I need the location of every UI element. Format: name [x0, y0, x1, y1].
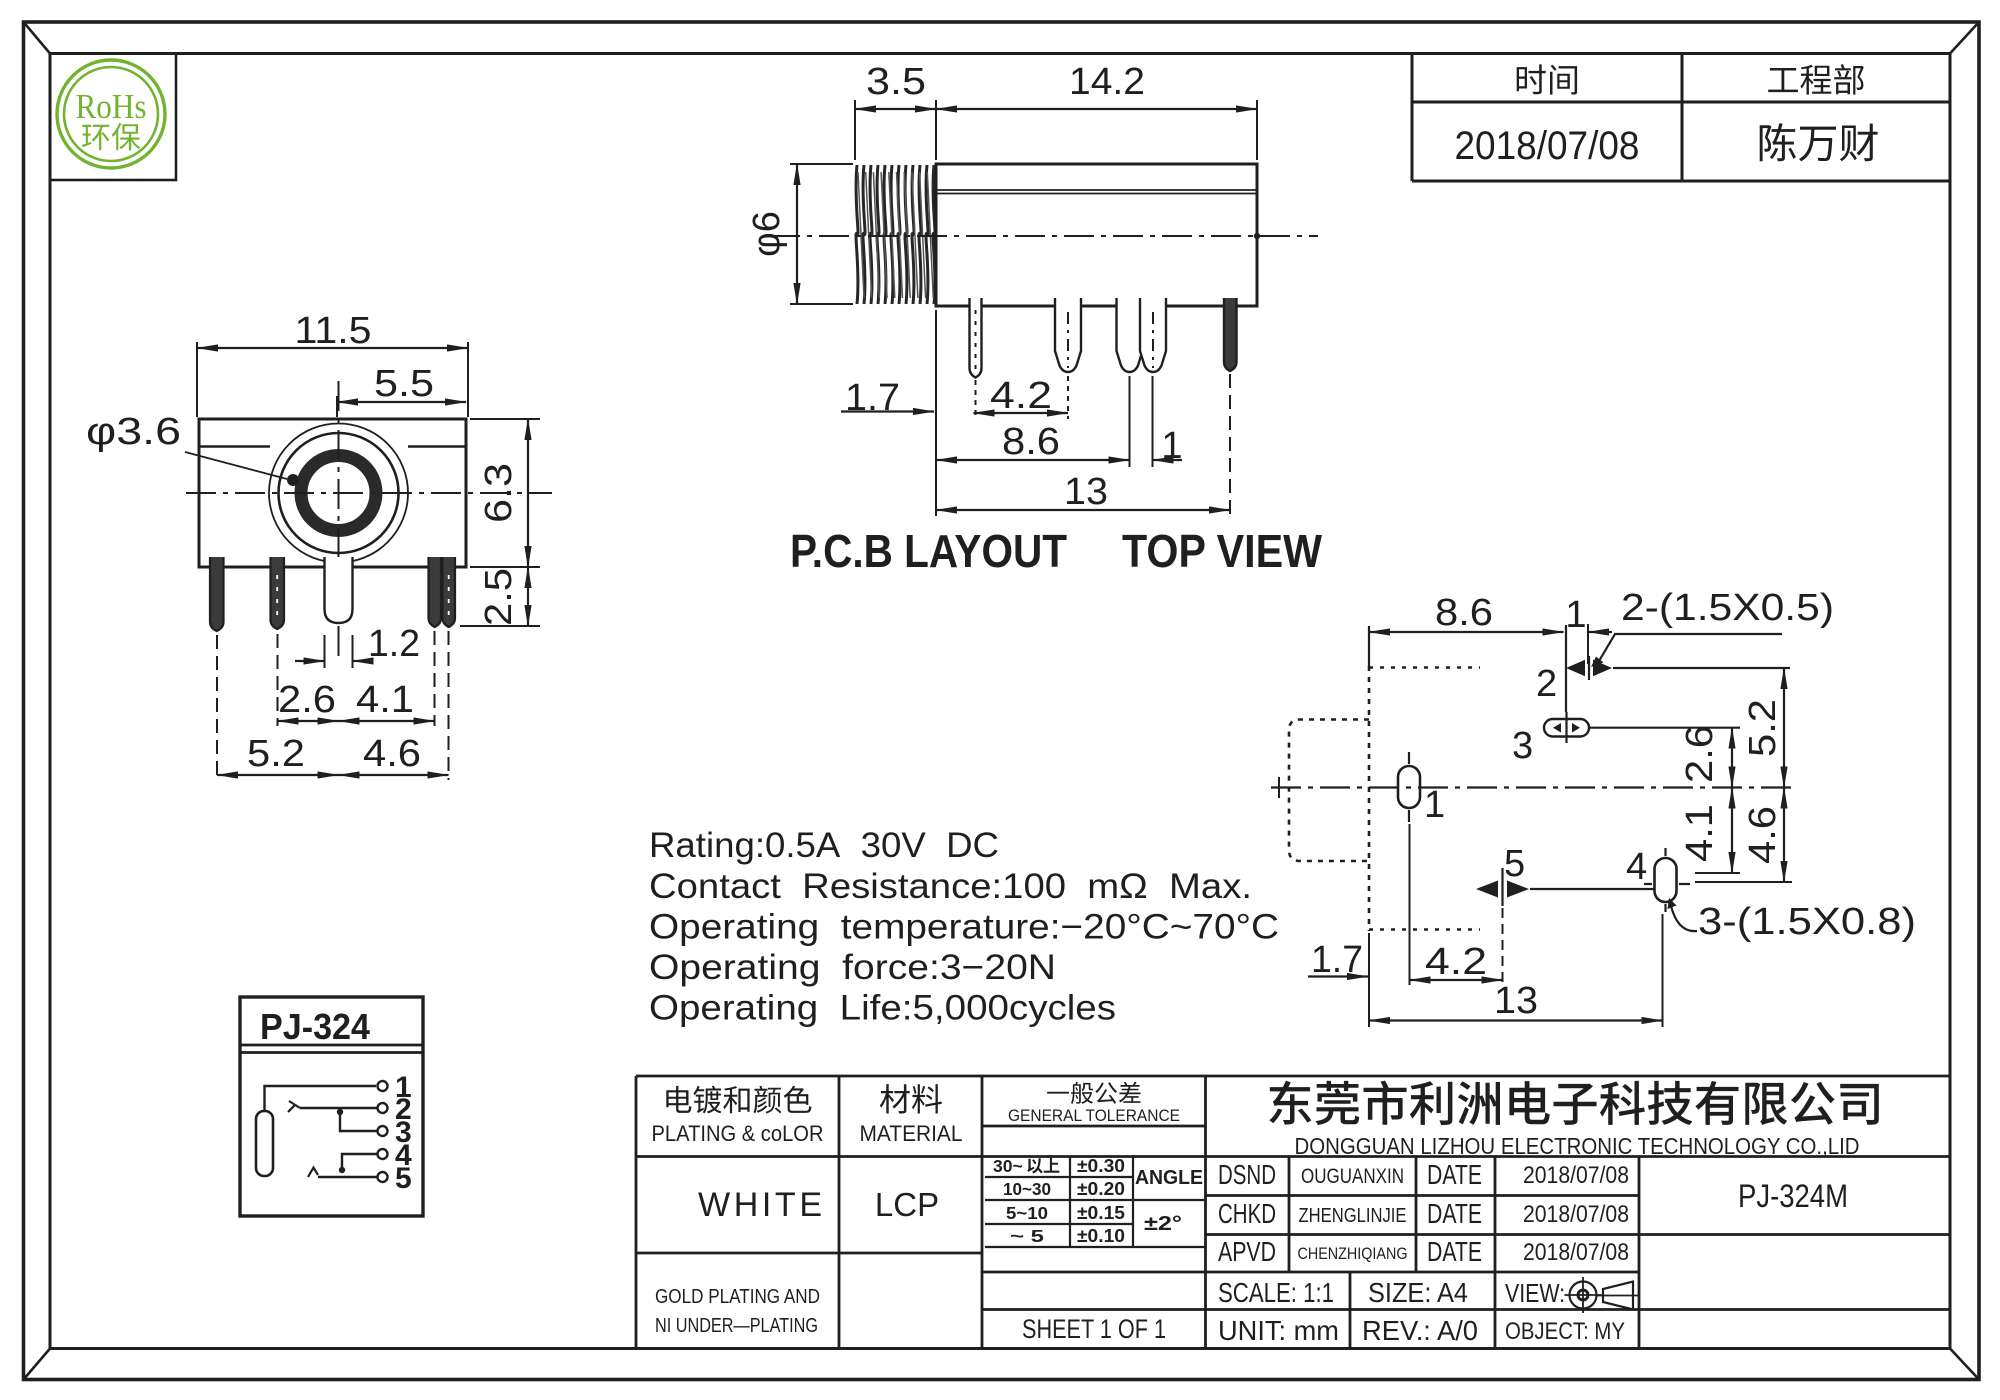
- svg-text:11.5: 11.5: [295, 310, 372, 352]
- svg-text:2.6: 2.6: [1679, 725, 1721, 783]
- svg-text:Operating temperature:−20°C~7: Operating temperature:−20°C~70°C: [649, 908, 1279, 947]
- svg-text:13: 13: [1494, 980, 1538, 1022]
- svg-text:1.7: 1.7: [845, 377, 900, 419]
- svg-text:2: 2: [1536, 663, 1557, 705]
- svg-text:CHKD: CHKD: [1218, 1198, 1276, 1229]
- svg-text:3: 3: [1512, 725, 1533, 767]
- svg-text:PJ-324: PJ-324: [260, 1006, 370, 1047]
- svg-text:φ6: φ6: [746, 211, 788, 257]
- svg-text:Operating force:3−20N: Operating force:3−20N: [649, 948, 1056, 987]
- svg-text:RoHs: RoHs: [76, 87, 147, 126]
- svg-text:3.5: 3.5: [866, 61, 926, 103]
- svg-text:5.2: 5.2: [247, 733, 305, 775]
- svg-text:2.6: 2.6: [278, 679, 336, 721]
- svg-text:ANGLE: ANGLE: [1135, 1167, 1203, 1189]
- svg-text:PLATING & coLOR: PLATING & coLOR: [652, 1121, 824, 1146]
- svg-text:2-(1.5X0.5): 2-(1.5X0.5): [1621, 587, 1834, 629]
- svg-text:4.1: 4.1: [1679, 804, 1721, 862]
- svg-text:8.6: 8.6: [1435, 592, 1493, 634]
- svg-text:OUGUANXIN: OUGUANXIN: [1301, 1165, 1404, 1188]
- svg-text:DATE: DATE: [1427, 1198, 1482, 1229]
- svg-text:1.2: 1.2: [368, 623, 420, 665]
- svg-text:LCP: LCP: [875, 1186, 939, 1223]
- svg-text:4.1: 4.1: [356, 679, 414, 721]
- svg-text:REV.: A/0: REV.: A/0: [1362, 1315, 1478, 1346]
- svg-text:1.7: 1.7: [1311, 939, 1363, 981]
- svg-text:DONGGUAN LIZHOU ELECTRONIC TEC: DONGGUAN LIZHOU ELECTRONIC TECHNOLOGY CO…: [1295, 1133, 1860, 1159]
- svg-text:2018/07/08: 2018/07/08: [1523, 1201, 1629, 1228]
- svg-text:Contact Resistance:100 mΩ M: Contact Resistance:100 mΩ Max.: [649, 867, 1252, 906]
- svg-text:8.6: 8.6: [1002, 421, 1060, 463]
- svg-text:3-(1.5X0.8): 3-(1.5X0.8): [1698, 901, 1916, 943]
- svg-text:10~30: 10~30: [1003, 1179, 1051, 1199]
- svg-text:PJ-324M: PJ-324M: [1738, 1178, 1848, 1214]
- svg-text:CHENZHIQIANG: CHENZHIQIANG: [1298, 1244, 1408, 1263]
- svg-text:MATERIAL: MATERIAL: [860, 1121, 963, 1146]
- svg-text:4.6: 4.6: [363, 733, 421, 775]
- svg-text:6.3: 6.3: [478, 463, 520, 523]
- svg-text:2018/07/08: 2018/07/08: [1523, 1239, 1629, 1266]
- svg-text:OBJECT: MY: OBJECT: MY: [1505, 1318, 1625, 1345]
- svg-text:±0.30: ±0.30: [1077, 1156, 1125, 1176]
- svg-text:Rating:0.5A 30V DC: Rating:0.5A 30V DC: [649, 826, 999, 865]
- svg-text:GENERAL TOLERANCE: GENERAL TOLERANCE: [1008, 1106, 1180, 1125]
- svg-text:DATE: DATE: [1427, 1159, 1482, 1190]
- svg-text:±0.10: ±0.10: [1077, 1226, 1125, 1246]
- svg-text:30~: 30~: [993, 1156, 1023, 1176]
- svg-text:2018/07/08: 2018/07/08: [1523, 1162, 1629, 1189]
- svg-text:DSND: DSND: [1218, 1159, 1276, 1190]
- svg-text:±2°: ±2°: [1144, 1213, 1182, 1235]
- svg-text:4: 4: [1626, 846, 1647, 888]
- svg-text:4.2: 4.2: [990, 375, 1052, 417]
- svg-text:±0.20: ±0.20: [1077, 1179, 1125, 1199]
- svg-text:5~10: 5~10: [1006, 1203, 1048, 1223]
- svg-text:5: 5: [395, 1162, 412, 1195]
- svg-text:SIZE: A4: SIZE: A4: [1368, 1277, 1468, 1308]
- svg-text:Operating Life:5,000cycles: Operating Life:5,000cycles: [649, 989, 1116, 1028]
- svg-text:±0.15: ±0.15: [1077, 1203, 1125, 1223]
- svg-text:2018/07/08: 2018/07/08: [1455, 124, 1640, 168]
- svg-text:APVD: APVD: [1218, 1236, 1276, 1267]
- svg-text:14.2: 14.2: [1069, 61, 1145, 103]
- svg-text:2.5: 2.5: [478, 568, 520, 626]
- svg-text:5.5: 5.5: [374, 363, 434, 405]
- svg-text:SHEET 1 OF 1: SHEET 1 OF 1: [1022, 1314, 1166, 1344]
- svg-text:SCALE: 1:1: SCALE: 1:1: [1218, 1277, 1334, 1308]
- svg-text:ZHENGLINJIE: ZHENGLINJIE: [1299, 1205, 1407, 1227]
- svg-text:5.2: 5.2: [1742, 699, 1784, 757]
- svg-text:4.6: 4.6: [1742, 806, 1784, 864]
- svg-text:VIEW:: VIEW:: [1505, 1278, 1565, 1308]
- svg-text:TOP VIEW: TOP VIEW: [1122, 525, 1323, 577]
- svg-text:NI UNDER—PLATING: NI UNDER—PLATING: [655, 1315, 818, 1337]
- svg-text:4.2: 4.2: [1425, 941, 1487, 983]
- svg-text:1: 1: [1161, 425, 1182, 467]
- svg-text:5: 5: [1504, 843, 1525, 885]
- svg-text:1: 1: [1565, 594, 1586, 636]
- svg-text:GOLD PLATING AND: GOLD PLATING AND: [655, 1286, 820, 1308]
- svg-text:UNIT: mm: UNIT: mm: [1218, 1315, 1339, 1346]
- svg-text:P.C.B LAYOUT: P.C.B LAYOUT: [790, 525, 1067, 577]
- svg-text:1: 1: [1424, 784, 1445, 826]
- svg-text:~ 5: ~ 5: [1010, 1226, 1044, 1246]
- svg-text:φ3.6: φ3.6: [86, 411, 181, 453]
- svg-text:DATE: DATE: [1427, 1236, 1482, 1267]
- svg-text:13: 13: [1064, 471, 1108, 513]
